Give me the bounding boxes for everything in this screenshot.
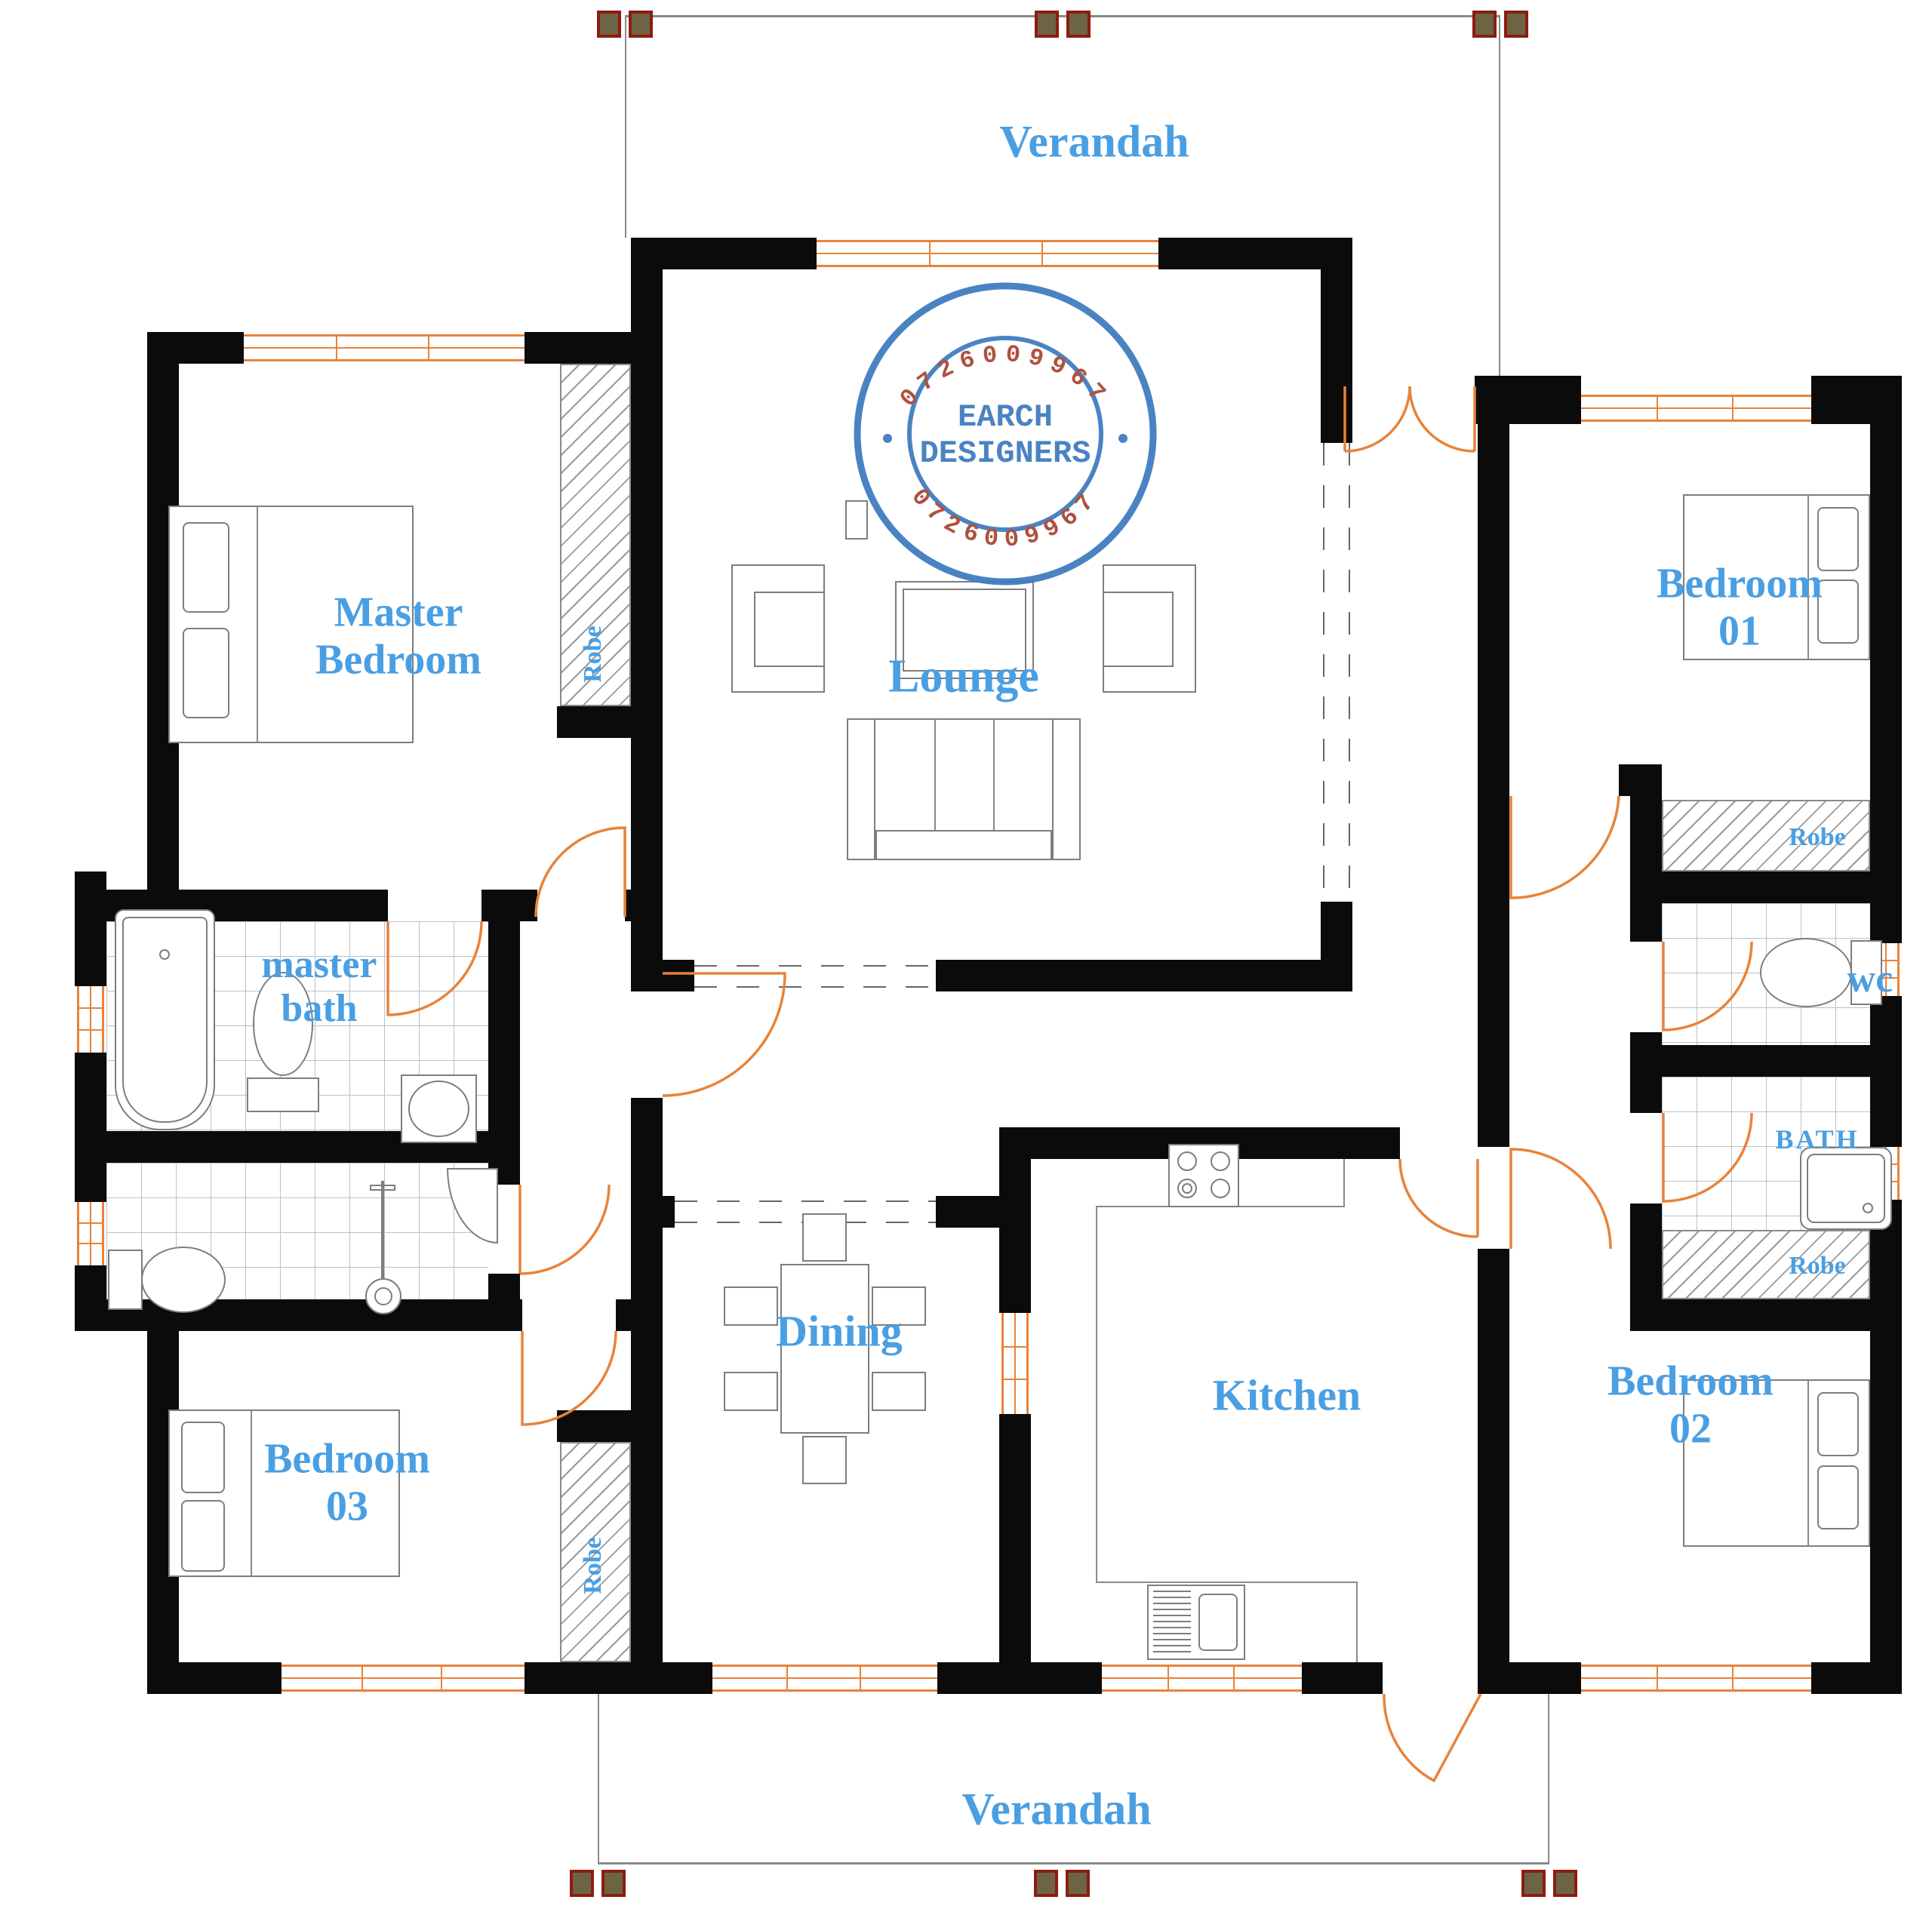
label-bedroom01: Bedroom 01 [1657,560,1823,654]
earch-designers-stamp: 0726009967 0726009967 EARCH DESIGNERS [845,274,1165,594]
door-entry-right [1410,386,1475,451]
label-wc: wc [1847,958,1894,1001]
label-master-bath: master bath [261,943,377,1031]
label-verandah-top: Verandah [999,116,1189,167]
stamp-name-line1: EARCH [958,399,1053,435]
stamp-dot-right [1118,434,1128,443]
stamp-name-line2: DESIGNERS [920,435,1091,472]
door-master-bath [388,921,481,1015]
label-master-bedroom: Master Bedroom [315,589,481,683]
label-lounge: Lounge [888,650,1039,702]
door-back [1384,1694,1481,1781]
svg-text:0726009967: 0726009967 [906,483,1106,553]
label-verandah-bottom: Verandah [961,1784,1151,1834]
door-wc [1663,942,1752,1030]
label-bedroom02: Bedroom 02 [1607,1357,1774,1452]
label-robe-bedroom01: Robe [1789,823,1846,852]
door-bedroom03 [522,1331,616,1425]
stamp-phone-bottom: 0726009967 [906,483,1106,553]
door-entry-left [1345,386,1410,451]
door-master-bedroom [536,828,625,917]
door-kitchen [1400,1159,1478,1237]
door-bath2 [520,1185,609,1274]
label-robe-bedroom03: Robe [579,1537,608,1594]
door-bedroom01 [1511,796,1619,898]
label-dining: Dining [776,1308,903,1357]
floor-plan: 0726009967 0726009967 EARCH DESIGNERS Ve… [0,0,1932,1909]
label-bedroom03: Bedroom 03 [264,1435,430,1529]
label-robe-bedroom02: Robe [1789,1252,1846,1280]
label-bath: BATH [1775,1124,1859,1154]
door-bedroom02 [1511,1149,1611,1249]
door-master-corridor [663,973,785,1096]
door-bathroom [1663,1113,1752,1201]
stamp-dot-left [883,434,892,443]
label-kitchen: Kitchen [1213,1372,1361,1421]
label-robe-master: Robe [579,626,608,683]
